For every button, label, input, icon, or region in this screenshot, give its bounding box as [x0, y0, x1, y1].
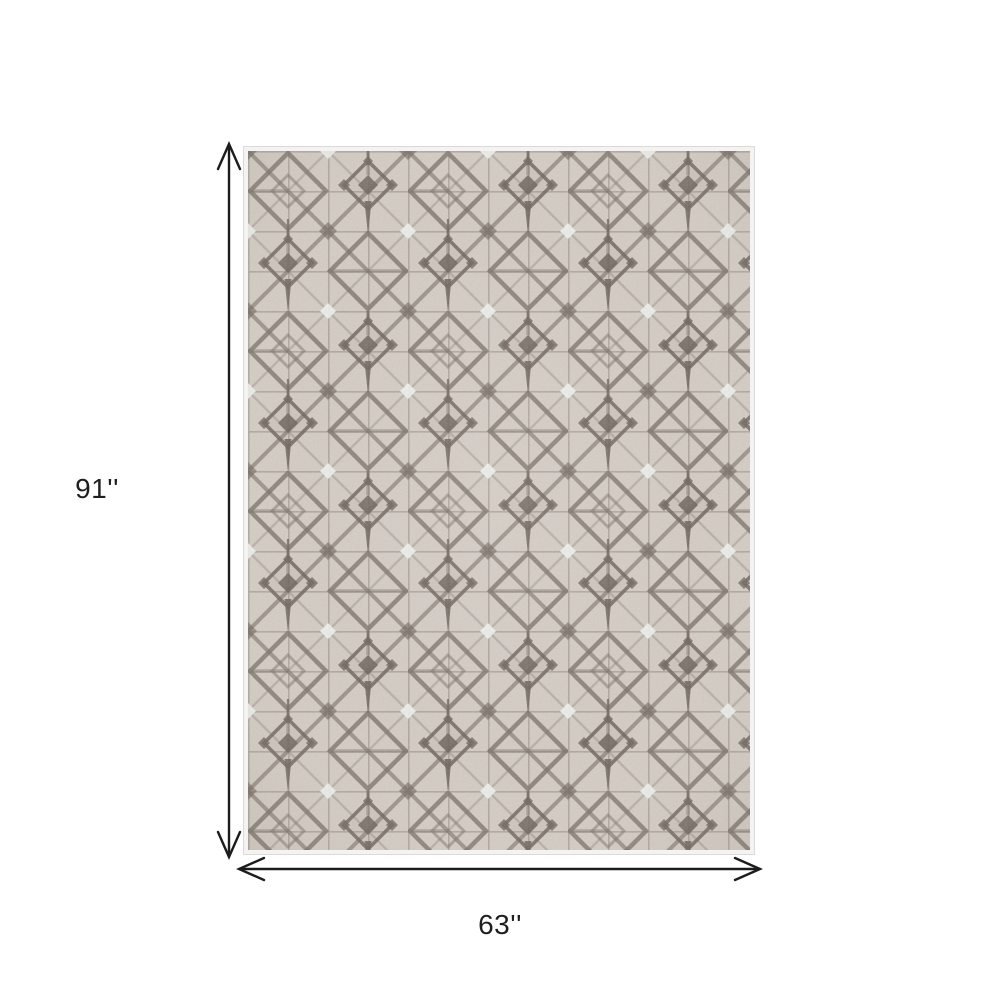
rug-field	[248, 151, 750, 850]
width-dimension-arrow	[239, 858, 760, 880]
width-dimension-label: 63''	[425, 910, 575, 940]
rug-image	[243, 146, 755, 855]
height-dimension-label: 91''	[52, 474, 142, 504]
height-dimension-arrow	[218, 144, 240, 857]
product-dimension-diagram: 91'' 63''	[0, 0, 1000, 1000]
rug-pattern	[243, 146, 755, 855]
